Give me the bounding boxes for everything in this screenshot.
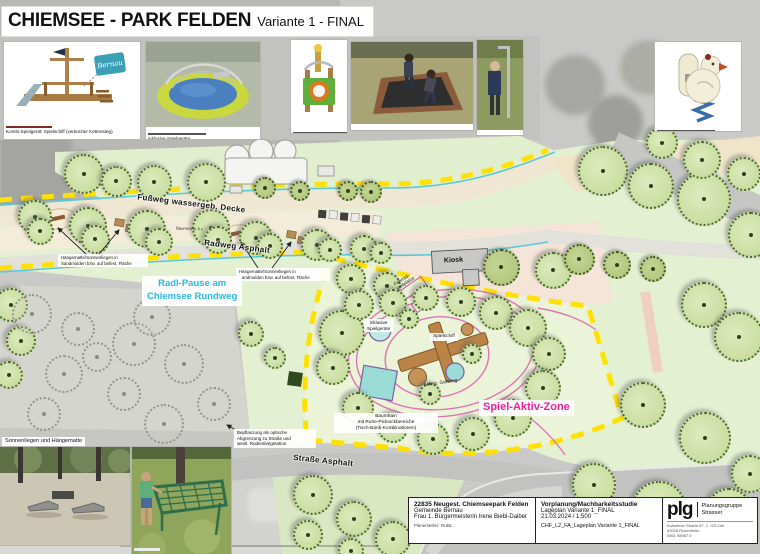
plan-label-haengematte-1: Hängematte/Sonnenliegen in Sandmulden bz… <box>58 254 148 267</box>
karussell-illustration <box>146 42 260 127</box>
plan-label-spielschiff: Spielschiff <box>430 333 458 341</box>
firm-name: Planungsgruppe Strasser <box>702 503 743 516</box>
plan-label-bepflanzung: Bepflanzung als optische Abgrenzung zu S… <box>234 429 316 448</box>
title-block-project: 22835 Neugest. Chiemseepark Felden Gemei… <box>409 498 536 543</box>
photo-trampolin <box>351 42 473 130</box>
sheet-title-variant: Variante 1 - FINAL <box>257 14 364 29</box>
plan-label-radl-pause: Radl-Pause am Chiemsee Rundweg <box>142 276 242 306</box>
plan-sheet: CHIEMSEE - PARK FELDENVariante 1 - FINAL… <box>0 0 760 554</box>
plan-label-baumhain: Baumhain mit Ruhe-Picknickbereiche (Tisc… <box>334 413 438 433</box>
spielschiff-illustration: Bernau <box>4 42 140 120</box>
trampolin-illustration <box>351 42 473 124</box>
photo-caption-inklusive: inklusive Spielgeräte <box>146 135 260 139</box>
photo-haengematte <box>132 447 231 554</box>
photo-sonnenliegen <box>0 447 130 545</box>
caption-smudge <box>293 132 347 133</box>
plan-label-kiosk: Kiosk <box>444 257 463 267</box>
date-scale-line: 21.03.2024 / 1:500 <box>541 514 657 520</box>
photo-karussell: inklusive Spielgeräte <box>146 42 260 139</box>
project-name: 22835 Neugest. Chiemseepark Felden <box>414 501 530 508</box>
photo-spielturm <box>291 40 347 133</box>
photo-caption-spielschiff: Kombi-Spielgerät: Spielschiff (verkürzte… <box>4 128 140 136</box>
sheet-title-text: CHIEMSEE - PARK FELDEN <box>8 10 251 31</box>
title-block: 22835 Neugest. Chiemseepark Felden Gemei… <box>408 497 758 544</box>
logo-divider <box>697 502 698 517</box>
firm-address: Kufsteiner Straße 87, 1. OG-Ost 83026 Ro… <box>667 521 753 539</box>
caption-smudge <box>657 130 715 131</box>
plan-label-haengematte-2: Hängematte/Sonnenliegen in Sandmulden bz… <box>236 268 330 281</box>
title-block-document: Vorplanung/Machbarkeitsstudie Lageplan V… <box>536 498 663 543</box>
wippente-illustration <box>655 42 741 124</box>
haengematte-illustration <box>132 447 231 554</box>
plan-label-inklusive: inklusive Spielgeräte <box>364 319 393 332</box>
plan-label-baumreihe: Baumreihe 4 x <box>176 226 203 232</box>
title-block-firm: plg Planungsgruppe Strasser Kufsteiner S… <box>663 498 757 543</box>
photo-wippente <box>655 42 741 131</box>
plan-label-spiel-aktiv-zone: Spiel-Aktiv-Zone <box>479 400 574 416</box>
photo-spielschiff: Bernau Kombi-Spielgerät: Spielschiff (ve… <box>4 42 140 139</box>
client-line-2: Frau 1. Bürgermeisterin Irene Biebl-Daib… <box>414 514 530 520</box>
wasserspiel-illustration <box>477 40 523 130</box>
file-name-line: CHF_L2_FA_Lageplan Variante 1_FINAL <box>541 523 657 529</box>
photo-wasserspiel <box>477 40 523 135</box>
spielturm-illustration <box>291 40 347 126</box>
planner-line: Planersteller: RUBL <box>414 523 530 528</box>
caption-sonnenliegen: Sonnenliegen und Hängematte <box>2 437 85 446</box>
plg-logo: plg <box>667 500 693 519</box>
sonnenliegen-illustration <box>0 447 130 545</box>
phase-line: Vorplanung/Machbarkeitsstudie <box>541 501 657 508</box>
sheet-title: CHIEMSEE - PARK FELDENVariante 1 - FINAL <box>2 7 373 36</box>
